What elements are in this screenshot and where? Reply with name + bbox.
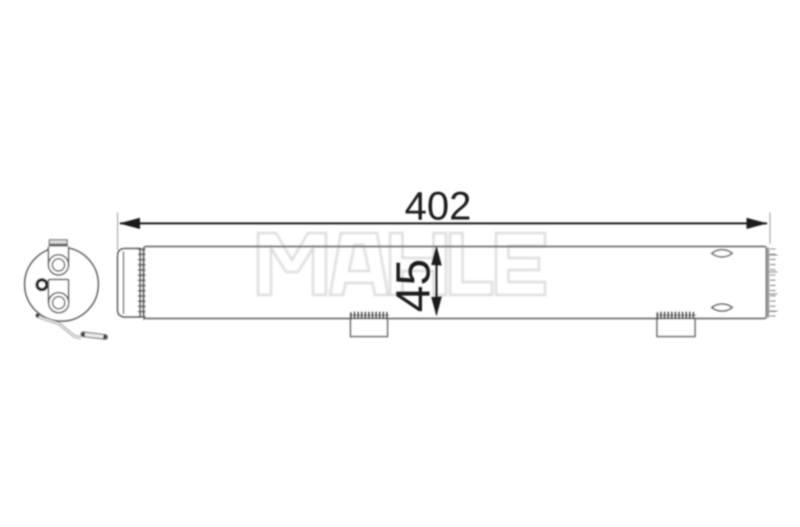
svg-text:45: 45 xyxy=(388,259,441,312)
svg-text:402: 402 xyxy=(405,185,472,229)
